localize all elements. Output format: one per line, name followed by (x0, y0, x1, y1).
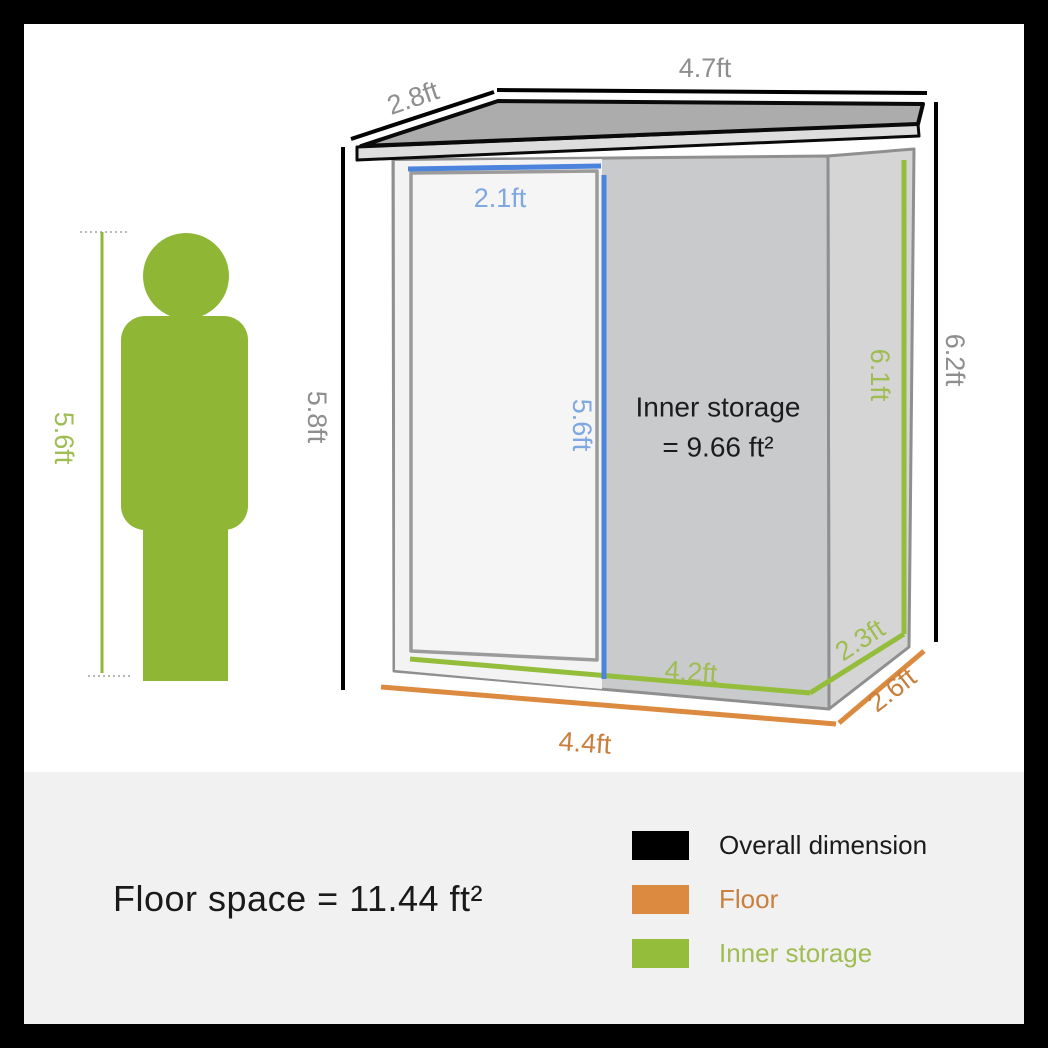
legend: Overall dimension Floor Inner storage (632, 830, 927, 992)
wall-height-label: 5.8ft (302, 391, 332, 444)
inner-height-label: 6.1ft (865, 349, 895, 402)
inner-floor-width-label: 4.2ft (664, 655, 719, 689)
floor-width-label: 4.4ft (558, 726, 613, 760)
legend-label-overall-dimension: Overall dimension (719, 830, 927, 861)
floor-swatch (632, 885, 689, 914)
overall-dimension-swatch (632, 831, 689, 860)
door-width-label: 2.1ft (474, 183, 527, 213)
person-height-label: 5.6ft (49, 412, 79, 465)
person-legs (143, 505, 228, 681)
image-frame: 4.7ft 2.8ft 2.1ft 5.6ft 6.1ft 6.2ft 5.8f… (0, 0, 1048, 1048)
legend-label-inner-storage: Inner storage (719, 938, 872, 969)
roof-width-line (497, 90, 927, 93)
inner-storage-note-line2: = 9.66 ft² (662, 432, 773, 463)
roof-depth-label: 2.8ft (383, 75, 443, 121)
door-height-label: 5.6ft (567, 399, 597, 452)
roof-width-label: 4.7ft (679, 53, 732, 83)
diagram-canvas: 4.7ft 2.8ft 2.1ft 5.6ft 6.1ft 6.2ft 5.8f… (24, 24, 1024, 1024)
footer-panel: Floor space = 11.44 ft² Overall dimensio… (24, 772, 1024, 1024)
legend-row-inner-storage: Inner storage (632, 938, 927, 969)
person-silhouette (121, 233, 248, 681)
legend-row-floor: Floor (632, 884, 927, 915)
inner-storage-swatch (632, 939, 689, 968)
overall-height-label: 6.2ft (940, 334, 970, 387)
person-torso (121, 316, 248, 530)
door-width-line (408, 166, 601, 169)
person-head (143, 233, 229, 319)
legend-row-overall-dimension: Overall dimension (632, 830, 927, 861)
floor-space-text: Floor space = 11.44 ft² (113, 878, 483, 920)
legend-label-floor: Floor (719, 884, 778, 915)
inner-storage-note-line1: Inner storage (636, 392, 801, 423)
